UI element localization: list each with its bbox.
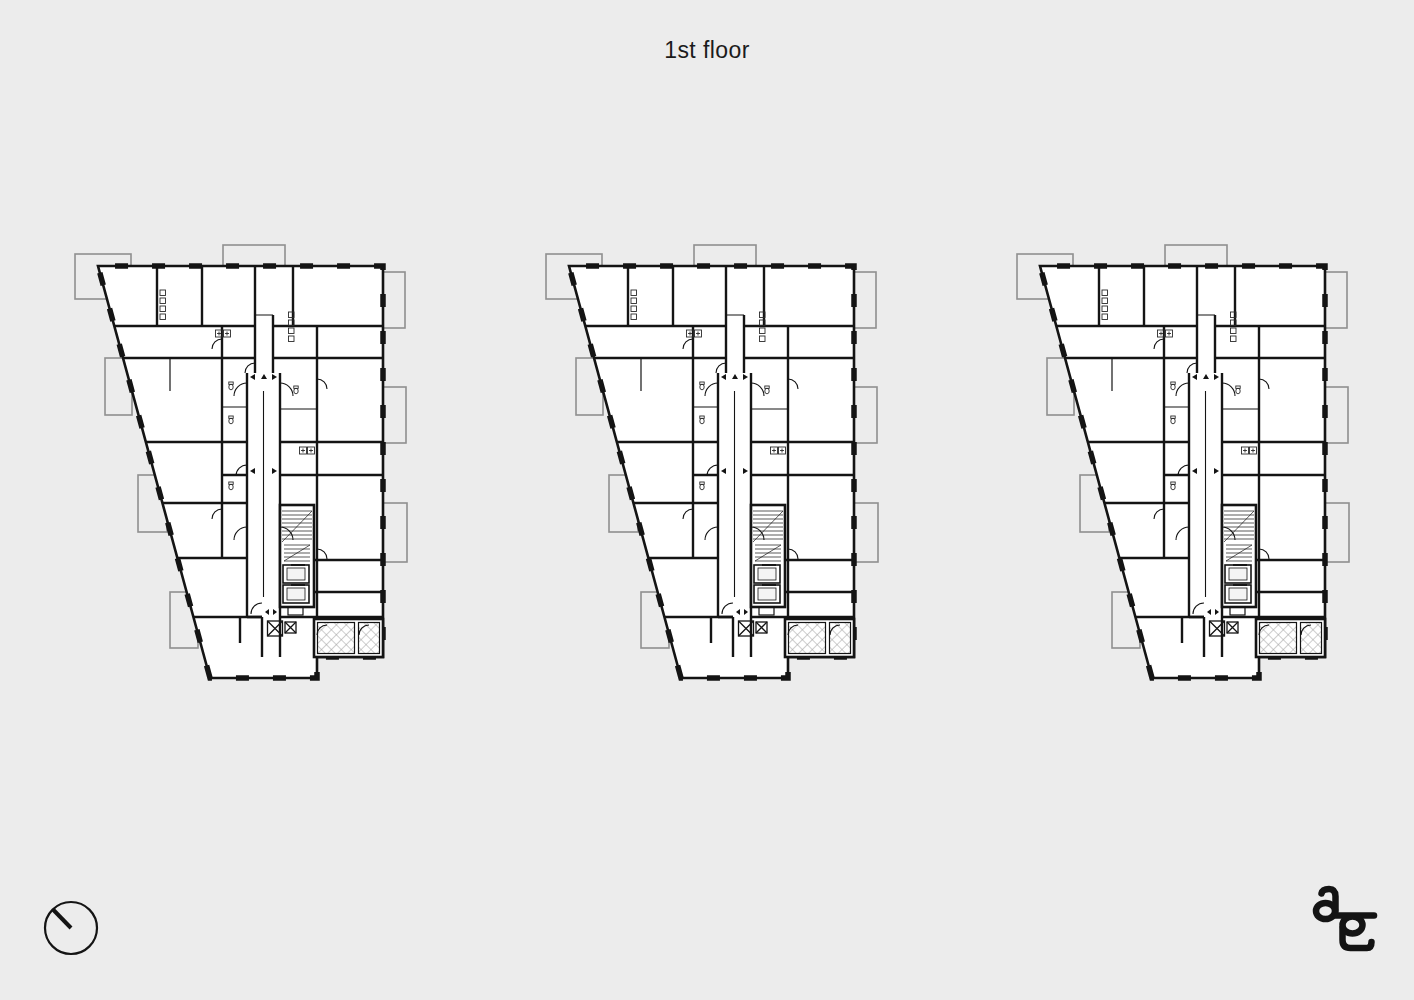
drawing-sheet: 1st floor <box>0 0 1414 1000</box>
floor-plan-center <box>545 243 879 689</box>
ag-monogram-logo <box>1307 882 1379 960</box>
north-arrow-icon <box>43 900 99 956</box>
floor-plan-left <box>74 243 408 689</box>
page-title: 1st floor <box>0 37 1414 64</box>
floor-plan-right <box>1016 243 1350 689</box>
